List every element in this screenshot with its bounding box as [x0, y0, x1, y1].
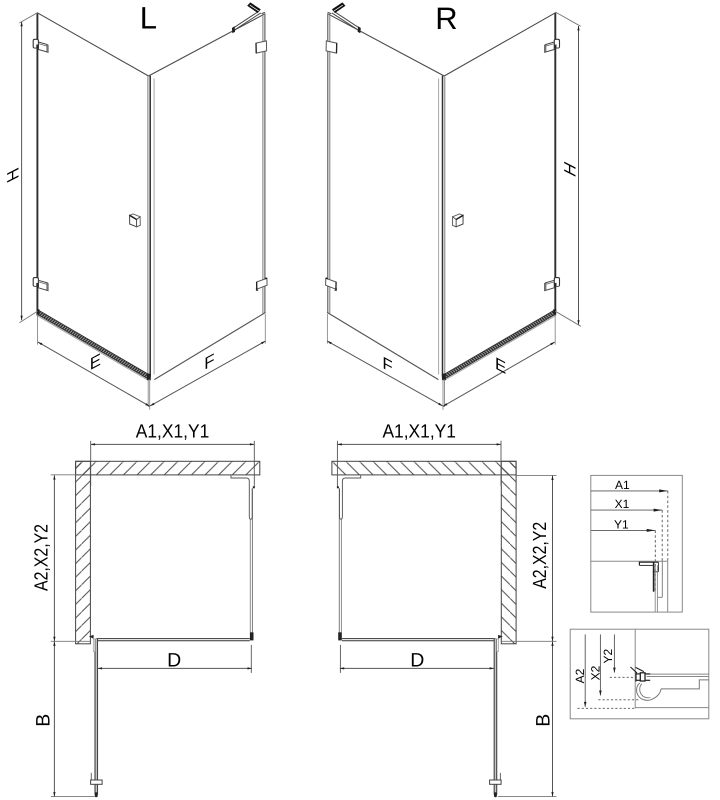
svg-text:R: R — [435, 1, 457, 36]
svg-text:X2: X2 — [588, 665, 602, 680]
svg-text:D: D — [410, 649, 424, 671]
svg-text:X1: X1 — [615, 497, 630, 511]
svg-text:Y1: Y1 — [614, 517, 629, 531]
svg-text:A1,X1,Y1: A1,X1,Y1 — [382, 421, 456, 442]
svg-text:A2,X2,Y2: A2,X2,Y2 — [530, 522, 551, 589]
svg-text:A1,X1,Y1: A1,X1,Y1 — [136, 421, 210, 442]
svg-text:A1: A1 — [615, 478, 630, 492]
svg-text:L: L — [140, 0, 157, 35]
svg-text:D: D — [167, 649, 181, 671]
svg-text:B: B — [32, 714, 54, 727]
svg-text:A2,X2,Y2: A2,X2,Y2 — [31, 524, 52, 591]
svg-text:B: B — [532, 714, 554, 727]
svg-text:Y2: Y2 — [601, 649, 615, 664]
svg-text:A2: A2 — [573, 668, 587, 683]
